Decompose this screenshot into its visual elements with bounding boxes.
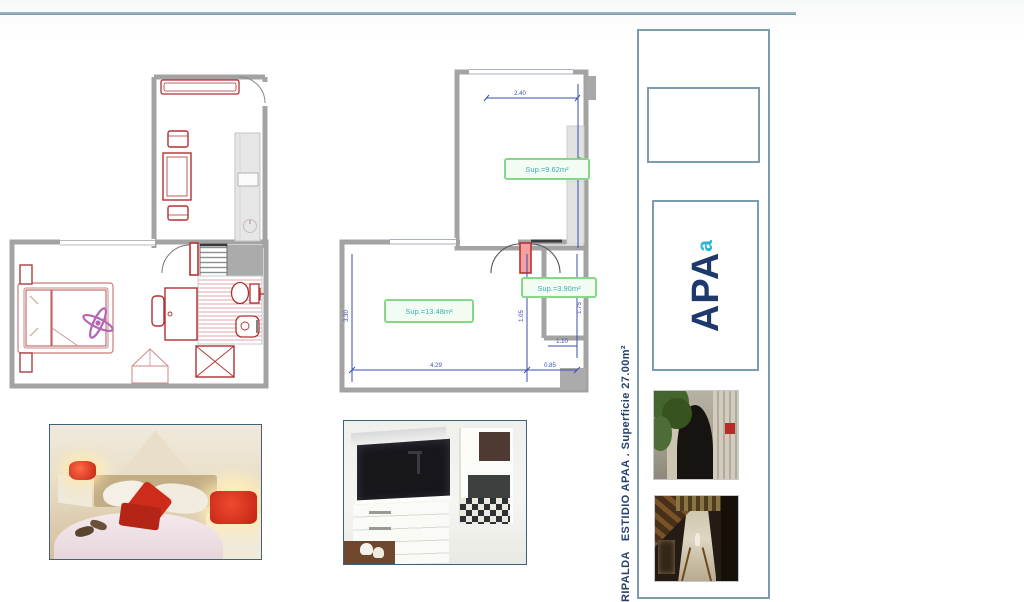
furnished-floor-plan <box>8 70 273 395</box>
vertical-title-text: RIPALDA ESTIDIO APAA . Superficie 27.00m… <box>620 345 632 602</box>
wall-stub <box>586 76 596 100</box>
property-sheet-page: 2.40 3.87 3.30 1.05 1.75 1.10 4.29 0.85 … <box>0 0 1024 602</box>
dim-bottom-main: 4.29 <box>430 363 442 369</box>
shop-window <box>658 540 675 574</box>
logo-accent-letter: a <box>694 239 717 252</box>
wall-mass <box>227 245 263 276</box>
counter <box>567 126 584 244</box>
street-arch-photo <box>653 390 739 480</box>
dimension-labels: 2.40 3.87 3.30 1.05 1.75 1.10 4.29 0.85 <box>344 91 584 369</box>
dim-main-height: 3.30 <box>344 310 350 322</box>
checkered-floor <box>460 498 509 524</box>
dim-bottom-side: 0.85 <box>544 363 556 369</box>
bedroom-photo <box>49 424 262 560</box>
jar <box>373 547 384 558</box>
black-backsplash <box>357 439 450 504</box>
dimensioned-floor-plan: 2.40 3.87 3.30 1.05 1.75 1.10 4.29 0.85 … <box>336 62 606 397</box>
logo-main-text: APA <box>685 252 727 332</box>
jar <box>360 543 373 556</box>
walls <box>342 72 586 390</box>
bidet <box>236 316 259 337</box>
wall-block <box>560 368 586 390</box>
ceiling-fan-icon <box>82 307 115 340</box>
window-openings <box>60 239 155 246</box>
utility-unit <box>200 244 227 276</box>
building-facade <box>713 391 738 479</box>
vanity <box>468 475 510 498</box>
sidebar-empty-box <box>647 87 760 163</box>
dark-wall <box>721 496 738 581</box>
window-openings <box>390 68 573 246</box>
dim-upper-width: 2.40 <box>514 91 526 97</box>
vertical-title: RIPALDA ESTIDIO APAA . Superficie 27.00m… <box>615 348 637 598</box>
person <box>695 533 700 546</box>
kitchen-photo <box>343 420 527 565</box>
red-sign <box>725 423 735 434</box>
dim-side-notch: 1.10 <box>556 339 568 345</box>
drawer-handle <box>369 527 391 530</box>
faucet <box>417 452 421 473</box>
interior-door <box>162 243 198 275</box>
window-ledge <box>161 80 239 94</box>
agency-logo: APAa <box>687 239 725 332</box>
red-lamp <box>69 461 96 480</box>
wardrobe <box>196 346 234 377</box>
mirror <box>479 432 510 461</box>
top-horizontal-rule <box>0 12 796 15</box>
dim-door-column: 1.05 <box>519 310 525 322</box>
ceiling-detail <box>676 496 722 511</box>
red-lamp <box>210 491 256 525</box>
passage-photo <box>654 495 739 582</box>
luggage-rack <box>132 349 168 383</box>
area-label-main-room: Sup.=13.48m² <box>405 307 453 316</box>
sink <box>238 173 258 186</box>
kitchen-counter <box>235 133 260 241</box>
dim-side-height: 1.75 <box>577 302 583 314</box>
drawer-handle <box>369 511 391 514</box>
desk <box>152 288 197 340</box>
agency-logo-box: APAa <box>652 200 759 371</box>
area-label-upper-room: Sup.=9.62m² <box>525 165 569 174</box>
area-label-side-room: Sup.=3.90m² <box>537 284 581 293</box>
dining-table <box>163 131 191 220</box>
